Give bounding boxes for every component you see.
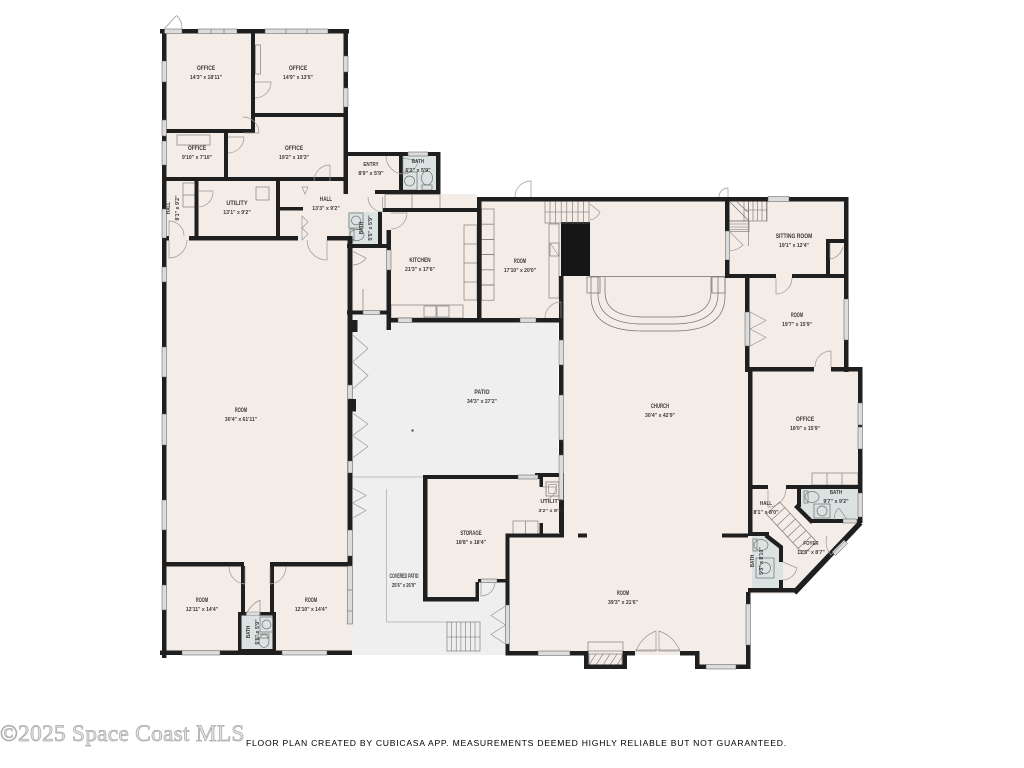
svg-text:FLOOR PLAN CREATED BY CUBICASA: FLOOR PLAN CREATED BY CUBICASA APP. MEAS… [246,738,787,748]
svg-text:BATH: BATH [830,490,842,496]
svg-text:COVERED PATIO: COVERED PATIO [390,573,419,580]
svg-text:©2025 Space Coast MLS: ©2025 Space Coast MLS [0,721,245,747]
svg-text:ROOM: ROOM [235,407,247,414]
svg-text:39'3" x 21'6": 39'3" x 21'6" [608,600,638,606]
svg-text:BATH: BATH [750,555,756,567]
svg-text:30'4" x 61'11": 30'4" x 61'11" [225,417,257,423]
svg-text:18'8" x 18'4": 18'8" x 18'4" [456,540,486,546]
svg-text:ROOM: ROOM [617,590,629,597]
svg-text:6'2" x 5'9": 6'2" x 5'9" [405,168,431,174]
svg-text:8'9" x 5'9": 8'9" x 5'9" [358,171,384,177]
svg-text:5'3" x 8'10": 5'3" x 8'10" [759,547,765,575]
svg-text:25'6" x 26'9": 25'6" x 26'9" [392,583,416,589]
svg-text:STORAGE: STORAGE [460,530,481,537]
svg-text:14'3" x 18'11": 14'3" x 18'11" [190,75,222,81]
svg-text:12'5" x 8'7": 12'5" x 8'7" [797,550,825,556]
svg-text:UTILITY: UTILITY [226,200,248,207]
svg-text:OFFICE: OFFICE [197,65,215,72]
svg-text:17'10" x 20'0": 17'10" x 20'0" [504,268,536,274]
svg-text:UTILITY: UTILITY [540,499,562,505]
svg-text:19'1" x 12'4": 19'1" x 12'4" [779,243,809,249]
svg-text:34'3" x 27'2": 34'3" x 27'2" [467,399,497,405]
svg-text:OFFICE: OFFICE [796,416,814,423]
svg-text:30'4" x 42'9": 30'4" x 42'9" [645,413,675,419]
svg-text:PATIO: PATIO [474,389,489,396]
svg-text:21'3" x 17'6": 21'3" x 17'6" [405,267,435,273]
svg-text:ROOM: ROOM [514,258,526,265]
svg-text:14'9" x 13'5": 14'9" x 13'5" [283,75,313,81]
svg-text:KITCHEN: KITCHEN [409,257,431,264]
svg-text:12'10" x 14'4": 12'10" x 14'4" [295,607,327,613]
svg-text:OFFICE: OFFICE [289,65,307,72]
svg-text:CHURCH: CHURCH [651,403,670,410]
svg-text:HALL: HALL [320,196,332,203]
svg-text:ROOM: ROOM [791,312,803,319]
svg-text:FOYER: FOYER [803,541,819,547]
svg-text:9'7" x 9'2": 9'7" x 9'2" [823,499,849,505]
svg-text:5'5" x 5'9": 5'5" x 5'9" [368,215,374,241]
svg-text:ROOM: ROOM [305,597,317,604]
svg-text:8'1" x 8'0": 8'1" x 8'0" [753,510,779,516]
svg-text:13'3" x 9'2": 13'3" x 9'2" [312,206,340,212]
svg-text:BATH: BATH [359,222,365,234]
svg-text:9'10" x 7'10": 9'10" x 7'10" [182,155,212,161]
svg-text:BATH: BATH [246,626,252,638]
svg-text:OFFICE: OFFICE [285,145,303,152]
svg-text:8'1" x 9'2": 8'1" x 9'2" [175,195,181,221]
svg-text:18'0" x 15'9": 18'0" x 15'9" [790,426,820,432]
svg-text:13'1" x 9'2": 13'1" x 9'2" [223,210,251,216]
svg-text:OFFICE: OFFICE [188,145,206,152]
svg-text:ROOM: ROOM [196,597,208,604]
svg-text:19'7" x 15'9": 19'7" x 15'9" [782,322,812,328]
svg-text:3'2" x 8'1": 3'2" x 8'1" [538,508,563,514]
svg-text:ENTRY: ENTRY [363,162,378,168]
svg-text:19'2" x 10'3": 19'2" x 10'3" [279,155,309,161]
svg-text:BATH: BATH [412,159,424,165]
svg-text:HALL: HALL [166,201,172,214]
svg-text:HALL: HALL [760,501,773,507]
svg-text:SITTING ROOM: SITTING ROOM [776,233,813,240]
svg-text:12'11" x 14'4": 12'11" x 14'4" [186,607,218,613]
svg-text:5'6" x 5'9": 5'6" x 5'9" [255,619,261,645]
